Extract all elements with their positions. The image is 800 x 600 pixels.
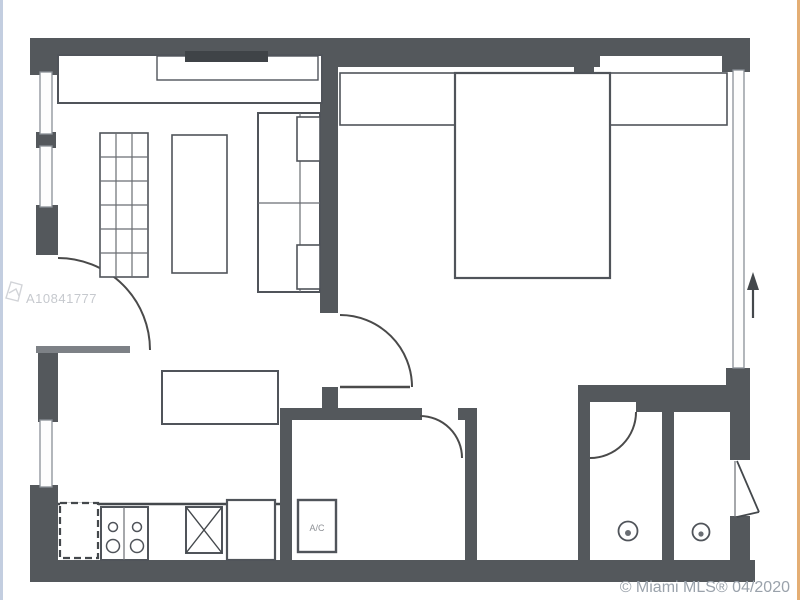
window-right-bedroom bbox=[733, 70, 744, 368]
console-table bbox=[172, 135, 227, 273]
kitchen-sink bbox=[186, 507, 222, 553]
dining-table bbox=[162, 371, 278, 424]
ac-closet: A/C bbox=[298, 500, 336, 552]
exterior-door bbox=[735, 461, 759, 517]
window-left-2 bbox=[40, 146, 52, 207]
window-left-3 bbox=[40, 420, 52, 487]
drain-fixture bbox=[693, 524, 710, 541]
top-wall-vent bbox=[185, 51, 268, 62]
floor-plan-photo: A/C A10841777 © Miami MLS® 04/2020 bbox=[0, 0, 800, 600]
floor-plan-svg: A/C A10841777 © Miami MLS® 04/2020 bbox=[0, 0, 800, 600]
shelf-unit bbox=[100, 133, 148, 277]
mls-credit-text: © Miami MLS® 04/2020 bbox=[620, 579, 790, 596]
ac-unit-label: A/C bbox=[309, 523, 325, 533]
window-left-1 bbox=[40, 72, 52, 134]
sofa bbox=[258, 113, 320, 292]
bedroom-door-swing bbox=[340, 315, 412, 387]
living-room-furniture bbox=[58, 51, 322, 424]
stove bbox=[101, 507, 148, 560]
top-counter bbox=[58, 51, 322, 103]
bedroom bbox=[340, 73, 759, 318]
bed bbox=[455, 73, 610, 278]
bathroom-door-swing bbox=[590, 412, 636, 458]
watermark-text: A10841777 bbox=[26, 291, 97, 306]
up-arrow-icon bbox=[747, 272, 759, 318]
toilet-fixture bbox=[619, 522, 638, 541]
left-edge-artifact bbox=[0, 0, 3, 600]
refrigerator bbox=[60, 503, 98, 558]
end-cabinet bbox=[227, 500, 275, 560]
watermark: A10841777 bbox=[6, 282, 97, 306]
mls-logo-icon bbox=[6, 282, 22, 301]
ac-closet-door-swing bbox=[420, 416, 462, 458]
kitchen bbox=[58, 500, 280, 560]
